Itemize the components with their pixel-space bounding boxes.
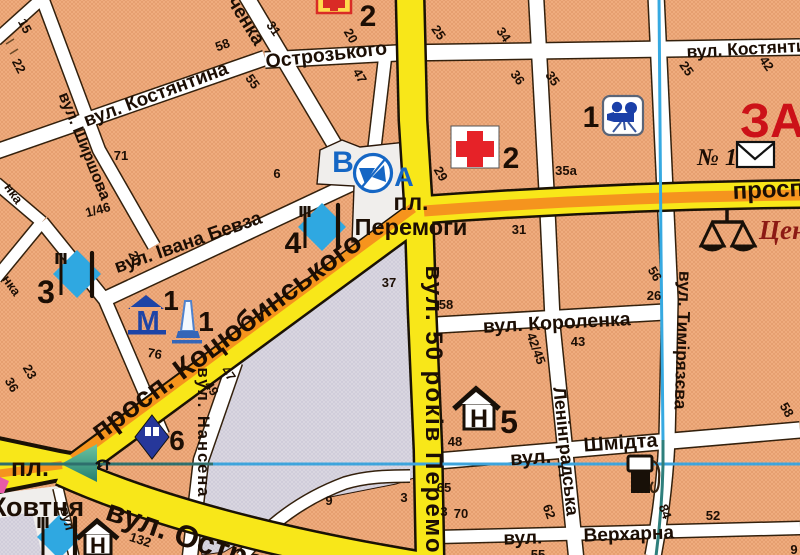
svg-text:31: 31 xyxy=(512,222,526,237)
svg-text:6: 6 xyxy=(273,166,280,181)
svg-text:1: 1 xyxy=(163,285,179,316)
svg-text:пл.: пл. xyxy=(11,454,49,482)
svg-text:5: 5 xyxy=(500,404,518,440)
svg-text:ЗА: ЗА xyxy=(740,95,800,148)
svg-text:52: 52 xyxy=(706,508,720,523)
svg-text:1: 1 xyxy=(583,101,600,134)
svg-text:Н: Н xyxy=(90,533,106,555)
svg-text:Н: Н xyxy=(470,405,488,433)
svg-text:55: 55 xyxy=(531,547,545,555)
svg-text:А: А xyxy=(394,162,414,192)
svg-text:76: 76 xyxy=(146,345,163,362)
svg-text:6: 6 xyxy=(169,425,185,456)
svg-text:В: В xyxy=(332,146,354,179)
svg-text:3: 3 xyxy=(37,274,55,310)
svg-text:43: 43 xyxy=(571,334,585,349)
svg-text:№ 1: № 1 xyxy=(696,145,737,171)
svg-text:37: 37 xyxy=(382,275,396,290)
svg-text:4: 4 xyxy=(285,227,302,260)
svg-text:9: 9 xyxy=(790,542,797,555)
svg-text:3: 3 xyxy=(400,490,407,505)
svg-text:35а: 35а xyxy=(555,163,577,178)
svg-text:71: 71 xyxy=(114,148,128,163)
svg-text:70: 70 xyxy=(454,506,468,521)
svg-text:9: 9 xyxy=(325,493,332,508)
svg-text:3: 3 xyxy=(440,504,447,519)
svg-text:26: 26 xyxy=(647,288,661,303)
svg-text:Цен: Цен xyxy=(758,215,800,245)
svg-text:2: 2 xyxy=(503,142,520,175)
svg-text:2: 2 xyxy=(360,0,377,33)
svg-text:вул.: вул. xyxy=(509,446,551,471)
svg-text:пл.: пл. xyxy=(394,189,429,215)
svg-text:Перемоги: Перемоги xyxy=(355,214,468,240)
svg-text:65: 65 xyxy=(437,480,451,495)
svg-text:48: 48 xyxy=(448,434,462,449)
svg-text:Верхарна: Верхарна xyxy=(583,522,675,546)
svg-text:просп.: просп. xyxy=(732,175,800,205)
svg-text:58: 58 xyxy=(439,297,453,312)
